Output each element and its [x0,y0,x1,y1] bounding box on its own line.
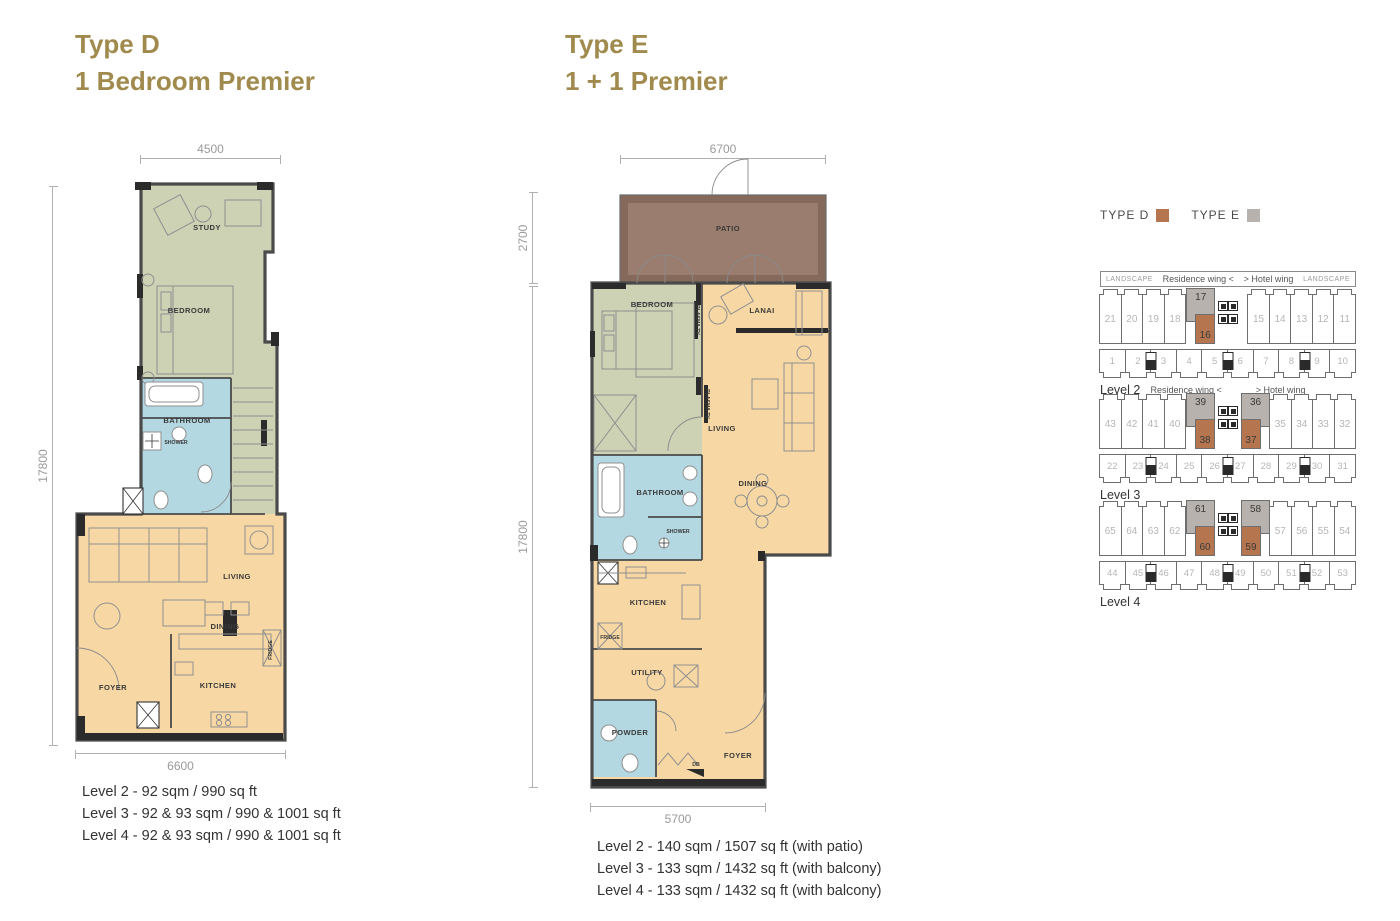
unit-cell: 19 [1142,294,1165,344]
keyplan-level-2: LANDSCAPE Residence wing < > Hotel wing … [1100,271,1356,397]
lift-icon [1218,526,1228,536]
type-e-dim-left: 17800 [532,286,533,788]
patio-door-arc [712,159,748,195]
highlight-pair: 39 38 [1186,399,1215,449]
type-d-dim-left: 17800 [52,186,53,746]
landscape-label-left: LANDSCAPE [1106,276,1153,283]
keyplan-l4-top-row: 65646362 61 60 58 59 57565554 [1100,506,1356,556]
unit-cell: 15 [1247,294,1270,344]
keyplan-l2-top-row: 21201918 17 16 1514131211 [1100,294,1356,344]
unit-cell: 33 [1312,399,1335,449]
type-e-level4: Level 4 - 133 sqm / 1432 sq ft (with bal… [597,883,882,899]
keyplan-l2-header: LANDSCAPE Residence wing < > Hotel wing … [1100,271,1356,287]
unit-cell: 35 [1269,399,1292,449]
stair-icon [1299,352,1310,370]
unit-cell: 10 [1329,349,1356,373]
highlight-pair: 36 37 [1241,399,1270,449]
room-label-shower: SHOWER [666,529,690,535]
type-d-dim-bottom: 6600 [75,753,286,754]
lift-icon [1218,513,1228,523]
room-label-kitchen: KITCHEN [630,598,667,607]
highlight-pair: 61 60 [1186,506,1215,556]
room-label-kitchen: KITCHEN [200,681,237,690]
room-label-living: LIVING [223,572,251,581]
unit-cell: 56 [1291,506,1314,556]
type-e-levels: Level 2 - 140 sqm / 1507 sq ft (with pat… [597,839,882,905]
type-d-dim-top: 4500 [140,158,281,159]
unit-cell: 41 [1142,399,1165,449]
stair-icon [1223,352,1234,370]
unit-cell: 11 [1333,294,1356,344]
type-d-level4: Level 4 - 92 & 93 sqm / 990 & 1001 sq ft [82,828,341,844]
room-label-powder: POWDER [612,728,649,737]
highlight-pair: 17 16 [1186,294,1215,344]
type-d-title-line2: 1 Bedroom Premier [75,63,315,100]
room-label-patio: PATIO [716,224,740,233]
keyplan-l3-bottom-row: 22232425262728293031 [1100,454,1356,478]
lift-icon [1228,301,1238,311]
unit-cell: 31 [1329,454,1356,478]
landscape-label-right: LANDSCAPE [1303,276,1350,283]
unit-cell: 53 [1329,561,1356,585]
room-label-bathroom: BATHROOM [163,416,210,425]
unit-cell: 64 [1121,506,1144,556]
type-d-level2: Level 2 - 92 sqm / 990 sq ft [82,784,341,800]
room-label-lanai: LANAI [749,306,774,315]
unit-group: 57565554 [1270,506,1356,556]
unit-cell: 34 [1291,399,1314,449]
type-d-level3: Level 3 - 92 & 93 sqm / 990 & 1001 sq ft [82,806,341,822]
room-label-bathroom: BATHROOM [636,488,683,497]
room-label-bedroom: BEDROOM [168,306,210,315]
unit-cell: 32 [1334,399,1357,449]
unit-cell: 40 [1164,399,1187,449]
unit-cell: 1 [1099,349,1126,373]
legend-type-e: TYPE E [1191,208,1260,222]
unit-cell: 44 [1099,561,1126,585]
unit-cell: 62 [1164,506,1187,556]
type-e-title-line2: 1 + 1 Premier [565,63,728,100]
unit-cell: 22 [1099,454,1126,478]
highlight-pair: 58 59 [1241,506,1270,556]
room-label-foyer: FOYER [99,683,127,692]
lift-icon [1228,526,1238,536]
unit-cell: 21 [1099,294,1122,344]
patio-inner [628,203,818,275]
room-label-utility: UTILITY [631,668,662,677]
lanai-wall [736,328,828,333]
unit-cell: 50 [1253,561,1280,585]
room-label-plasma-tv-2: PLASMA TV [704,389,710,419]
lift-icon [1228,406,1238,416]
unit-cell: 47 [1176,561,1203,585]
type-e-title: Type E 1 + 1 Premier [565,26,728,100]
type-e-floor-plan: PATIO BEDROOM LANAI LIVING BATHROOM SHOW… [590,155,832,792]
lift-core [1215,506,1241,556]
lift-icon [1218,419,1228,429]
lift-icon [1228,513,1238,523]
room-label-foyer: FOYER [724,751,752,760]
lift-icon [1218,301,1228,311]
stair-icon [1299,457,1310,475]
unit-cell: 28 [1253,454,1280,478]
room-label-plasma-tv-1: PLASMA TV [694,305,700,335]
lift-core [1215,294,1241,344]
unit-cell: 57 [1269,506,1292,556]
type-d-unit: 60 [1195,526,1215,556]
lift-icon [1218,406,1228,416]
room-label-shower: SHOWER [164,440,188,446]
keyplan-l4-bottom-row: 44454647484950515253 [1100,561,1356,585]
unit-group: 1514131211 [1248,294,1356,344]
type-d-title: Type D 1 Bedroom Premier [75,26,315,100]
residence-wing-label: Residence wing < [1163,274,1234,284]
room-label-study: STUDY [193,223,221,232]
keyplan-l2-bottom-row: 12345678910 [1100,349,1356,373]
bottom-wall [77,733,283,740]
type-d-unit: 37 [1241,419,1261,449]
type-e-level3: Level 3 - 133 sqm / 1432 sq ft (with bal… [597,861,882,877]
study-bedroom-area [141,184,277,378]
lift-icon [1218,314,1228,324]
unit-cell: 14 [1269,294,1292,344]
unit-group: 35343332 [1270,399,1356,449]
room-label-dining: DINING [739,479,768,488]
unit-cell: 18 [1164,294,1187,344]
unit-cell: 12 [1312,294,1335,344]
unit-cell: 7 [1253,349,1280,373]
stair-icon [1223,564,1234,582]
room-label-db: DB [692,762,700,768]
type-d-unit: 38 [1195,419,1215,449]
type-d-floor-plan: STUDY BEDROOM BATHROOM SHOWER LIVING DIN… [75,182,287,748]
type-d-unit: 16 [1195,314,1215,344]
stair-icon [1146,457,1157,475]
type-d-unit: 59 [1241,526,1261,556]
unit-cell: 63 [1142,506,1165,556]
unit-cell: 13 [1290,294,1313,344]
type-e-level2: Level 2 - 140 sqm / 1507 sq ft (with pat… [597,839,882,855]
room-label-fridge: FRIDGE [600,635,620,641]
unit-cell: 43 [1099,399,1122,449]
unit-cell: 55 [1312,506,1335,556]
stair-icon [1146,564,1157,582]
room-label-bedroom: BEDROOM [631,300,673,309]
type-e-dim-bottom: 5700 [590,806,766,807]
keyplan-level-4: 65646362 61 60 58 59 57565554 444546 [1100,506,1356,609]
keyplan-l4-label: Level 4 [1100,595,1356,609]
legend-type-d: TYPE D [1100,208,1169,222]
keyplan-level-3: Residence wing < > Hotel wing 43424140 3… [1100,385,1356,502]
type-e-dim-left-upper: 2700 [532,192,533,284]
type-d-title-line1: Type D [75,26,315,63]
lift-icon [1228,314,1238,324]
room-label-dining: DINING [211,622,240,631]
type-e-swatch [1247,209,1260,222]
lift-core [1215,399,1241,449]
stair-icon [1223,457,1234,475]
keyplan-l3-top-row: 43424140 39 38 36 37 35343332 [1100,399,1356,449]
room-label-living: LIVING [708,424,736,433]
type-d-levels: Level 2 - 92 sqm / 990 sq ft Level 3 - 9… [82,784,341,850]
type-d-swatch [1156,209,1169,222]
unit-cell: 54 [1334,506,1357,556]
lift-icon [1228,419,1238,429]
hotel-wing-label: > Hotel wing [1244,274,1294,284]
unit-cell: 65 [1099,506,1122,556]
unit-group: 43424140 [1100,399,1186,449]
stair-icon [1299,564,1310,582]
bottom-wall [592,779,765,786]
unit-cell: 42 [1121,399,1144,449]
stair-icon [1146,352,1157,370]
unit-cell: 20 [1121,294,1144,344]
keyplan-l3-label: Level 3 [1100,488,1356,502]
unit-group: 65646362 [1100,506,1186,556]
unit-group: 21201918 [1100,294,1186,344]
legend: TYPE D TYPE E [1100,208,1260,222]
wardrobe-area [231,378,277,514]
type-e-title-line1: Type E [565,26,728,63]
room-label-fridge: FRIDGE [268,640,274,660]
unit-cell: 4 [1176,349,1203,373]
unit-cell: 25 [1176,454,1203,478]
brochure-page: Type D 1 Bedroom Premier Type E 1 + 1 Pr… [0,0,1400,921]
